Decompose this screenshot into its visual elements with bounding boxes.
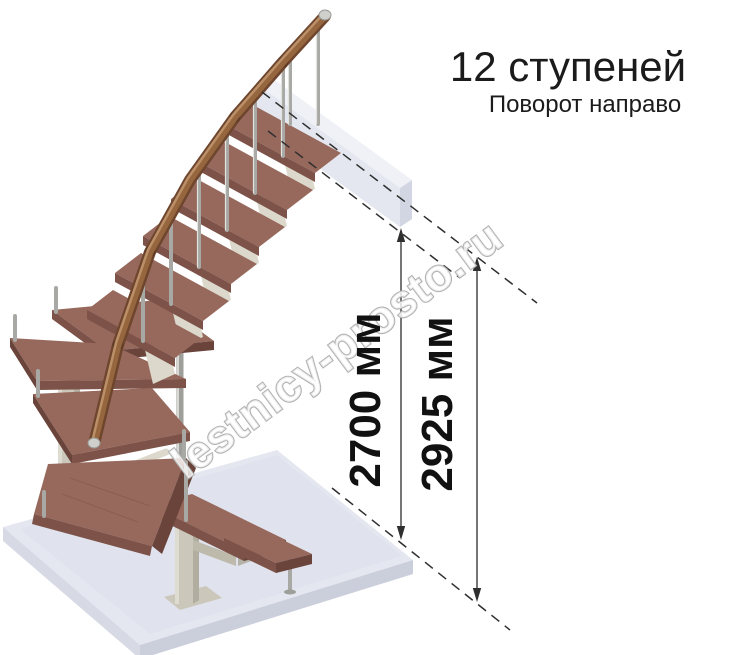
dimension-label-2925: 2925 мм: [413, 316, 462, 491]
page-title: 12 ступеней: [450, 43, 686, 90]
staircase-illustration: lestnicy-prosto.ru 2700 мм 2925 мм 12 ст…: [0, 0, 744, 655]
dimension-2925: [473, 257, 481, 602]
dimension-label-2700: 2700 мм: [341, 312, 390, 487]
page-subtitle: Поворот направо: [489, 91, 681, 118]
staircase-diagram-page: lestnicy-prosto.ru 2700 мм 2925 мм 12 ст…: [0, 0, 744, 655]
